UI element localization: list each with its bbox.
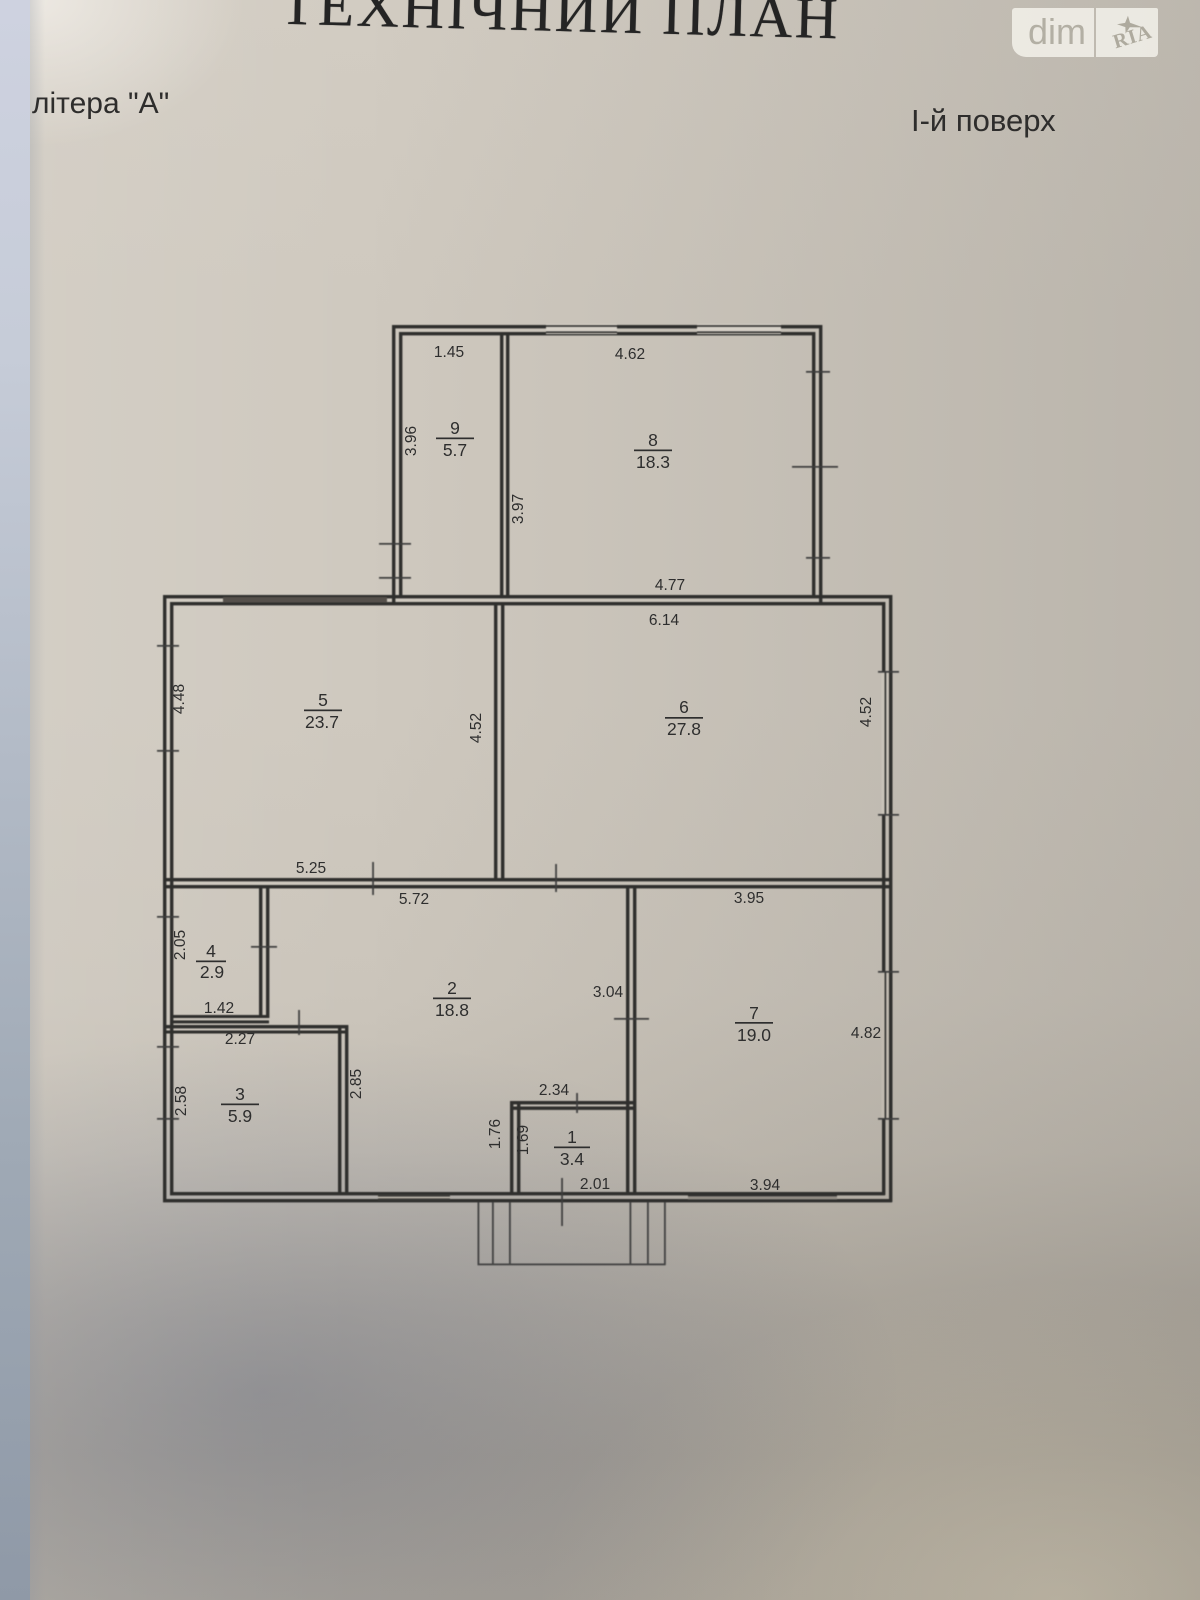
svg-text:3: 3	[235, 1084, 245, 1104]
svg-text:2.05: 2.05	[172, 930, 189, 960]
svg-text:5.9: 5.9	[228, 1106, 252, 1126]
svg-text:2.9: 2.9	[200, 962, 224, 982]
svg-text:1: 1	[567, 1127, 577, 1147]
svg-text:2.01: 2.01	[580, 1176, 610, 1193]
svg-text:2.58: 2.58	[173, 1086, 190, 1116]
svg-text:18.3: 18.3	[636, 452, 670, 472]
svg-text:4.52: 4.52	[468, 713, 485, 743]
svg-text:18.8: 18.8	[435, 1000, 469, 1020]
svg-text:9: 9	[450, 418, 460, 438]
svg-text:4.52: 4.52	[858, 697, 875, 727]
svg-text:27.8: 27.8	[667, 719, 701, 739]
svg-text:2.27: 2.27	[225, 1031, 255, 1048]
svg-text:5.25: 5.25	[296, 860, 326, 877]
svg-text:6: 6	[679, 697, 689, 717]
svg-text:1.69: 1.69	[515, 1125, 532, 1155]
svg-text:1.76: 1.76	[487, 1119, 504, 1149]
svg-text:4.82: 4.82	[851, 1025, 881, 1042]
svg-text:3.94: 3.94	[750, 1177, 781, 1194]
svg-text:8: 8	[648, 430, 658, 450]
svg-text:3.04: 3.04	[593, 984, 624, 1001]
svg-text:1.45: 1.45	[434, 344, 464, 361]
svg-text:5.72: 5.72	[399, 891, 429, 908]
svg-text:4.62: 4.62	[615, 346, 645, 363]
svg-text:2: 2	[447, 978, 457, 998]
svg-text:2.85: 2.85	[348, 1069, 365, 1099]
svg-text:3.96: 3.96	[403, 426, 420, 456]
svg-text:4.77: 4.77	[655, 577, 685, 594]
svg-text:2.34: 2.34	[539, 1082, 570, 1099]
svg-text:3.97: 3.97	[510, 494, 527, 524]
svg-text:5: 5	[318, 690, 328, 710]
svg-text:5.7: 5.7	[443, 440, 467, 460]
svg-text:3.95: 3.95	[734, 890, 764, 907]
svg-text:3.4: 3.4	[560, 1149, 585, 1169]
svg-text:1.42: 1.42	[204, 1000, 234, 1017]
svg-text:19.0: 19.0	[737, 1025, 771, 1045]
svg-text:23.7: 23.7	[305, 712, 339, 732]
svg-text:7: 7	[749, 1003, 759, 1023]
svg-text:4: 4	[206, 941, 216, 961]
svg-text:4.48: 4.48	[171, 684, 188, 714]
svg-text:6.14: 6.14	[649, 612, 680, 629]
